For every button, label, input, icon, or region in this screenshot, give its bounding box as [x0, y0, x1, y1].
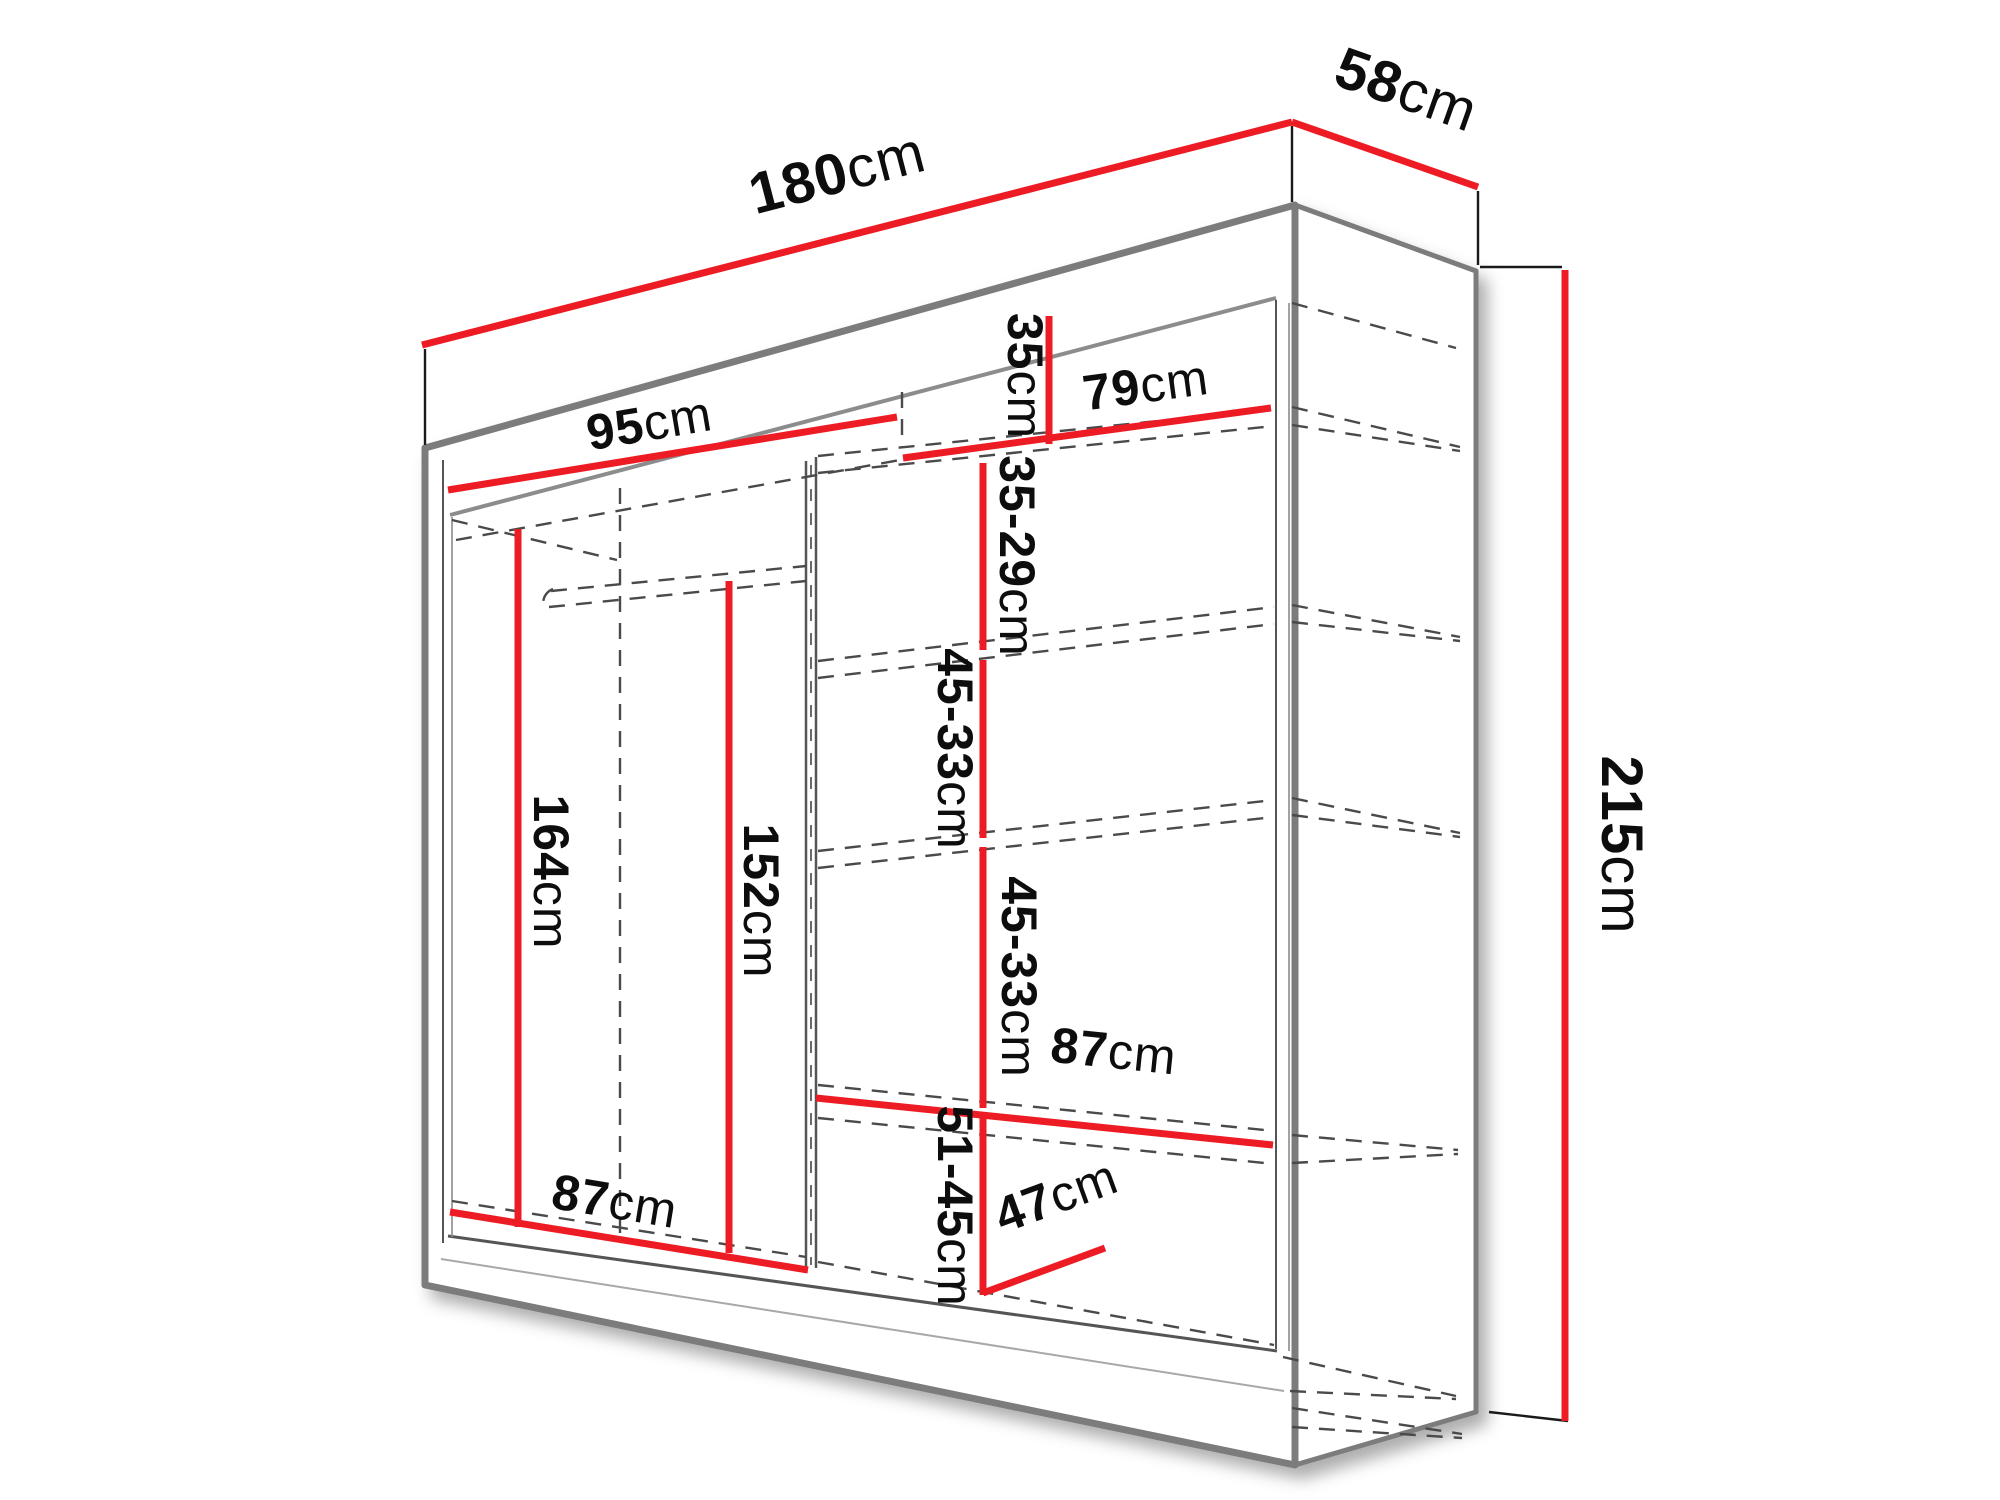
label-depth-58: 58cm	[1327, 35, 1486, 145]
label-gap-45-33-b: 45-33cm	[991, 876, 1047, 1078]
height-extension-bottom	[1489, 1412, 1568, 1421]
label-gap-35-29: 35-29cm	[989, 455, 1045, 657]
label-gap-51-45: 51-45cm	[927, 1105, 983, 1307]
label-gap-45-33-a: 45-33cm	[927, 648, 983, 850]
right-side-panel	[1295, 205, 1476, 1465]
label-height-164: 164cm	[523, 794, 579, 949]
wardrobe-diagram-page: 180cm 58cm 215cm 95cm 79cm 35cm 35-29cm …	[0, 0, 2000, 1500]
label-height-152: 152cm	[733, 823, 789, 978]
label-width-180: 180cm	[742, 119, 932, 227]
wardrobe-dimension-diagram: 180cm 58cm 215cm 95cm 79cm 35cm 35-29cm …	[0, 0, 2000, 1500]
label-height-35: 35cm	[997, 313, 1053, 439]
label-height-215: 215cm	[1589, 755, 1654, 934]
